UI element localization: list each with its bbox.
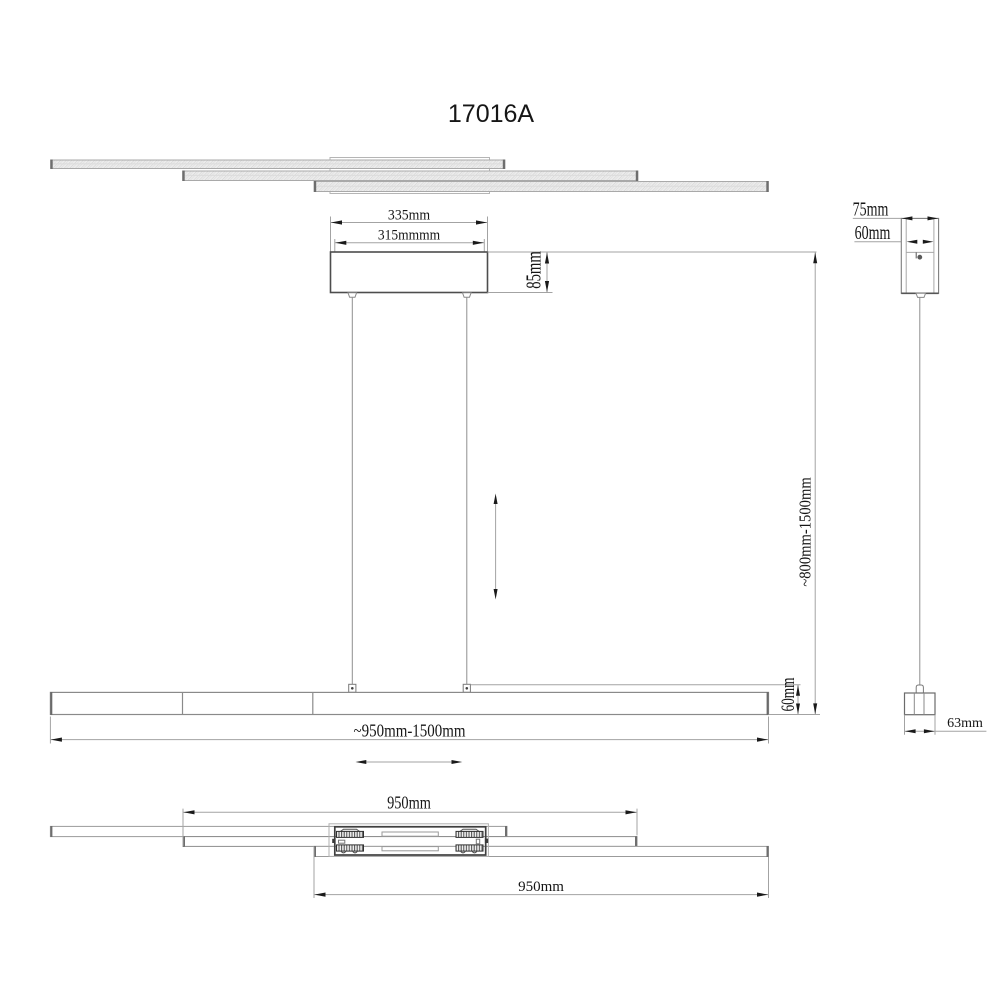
svg-text:~800mm-1500mm: ~800mm-1500mm	[797, 477, 815, 587]
svg-text:335mm: 335mm	[388, 207, 430, 224]
svg-text:63mm: 63mm	[947, 716, 983, 731]
svg-text:75mm: 75mm	[853, 198, 889, 220]
svg-text:315mmmm: 315mmmm	[378, 227, 440, 244]
svg-text:950mm: 950mm	[387, 794, 431, 813]
svg-text:17016A: 17016A	[448, 100, 535, 128]
svg-text:60mm: 60mm	[855, 222, 891, 244]
svg-text:60mm: 60mm	[777, 677, 799, 711]
svg-text:~950mm-1500mm: ~950mm-1500mm	[354, 720, 466, 740]
svg-text:950mm: 950mm	[518, 879, 564, 895]
svg-text:85mm: 85mm	[522, 251, 545, 289]
